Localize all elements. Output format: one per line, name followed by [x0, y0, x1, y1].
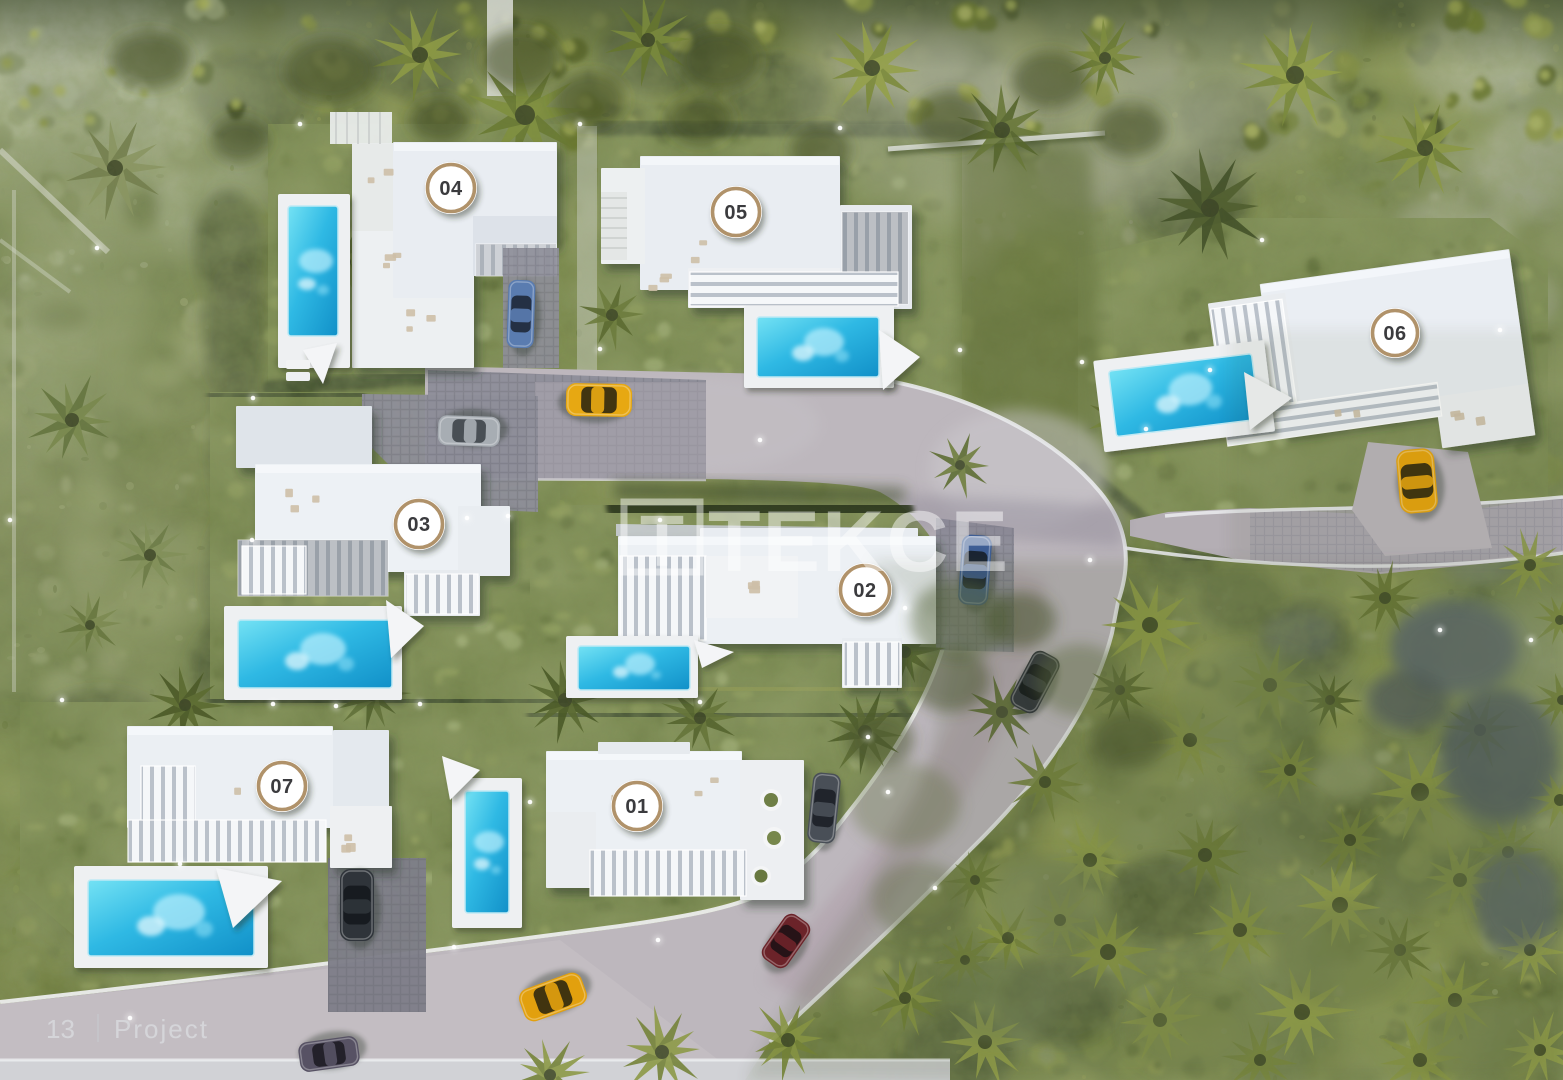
svg-text:07: 07: [270, 776, 293, 798]
svg-text:TEKCE: TEKCE: [708, 494, 1008, 590]
svg-text:13: 13: [46, 1014, 75, 1044]
svg-text:03: 03: [407, 514, 430, 536]
svg-text:01: 01: [625, 796, 648, 818]
svg-text:Project: Project: [114, 1014, 209, 1044]
svg-text:05: 05: [724, 202, 747, 224]
svg-text:06: 06: [1383, 323, 1406, 345]
svg-text:04: 04: [439, 178, 463, 200]
svg-text:T: T: [640, 502, 684, 582]
